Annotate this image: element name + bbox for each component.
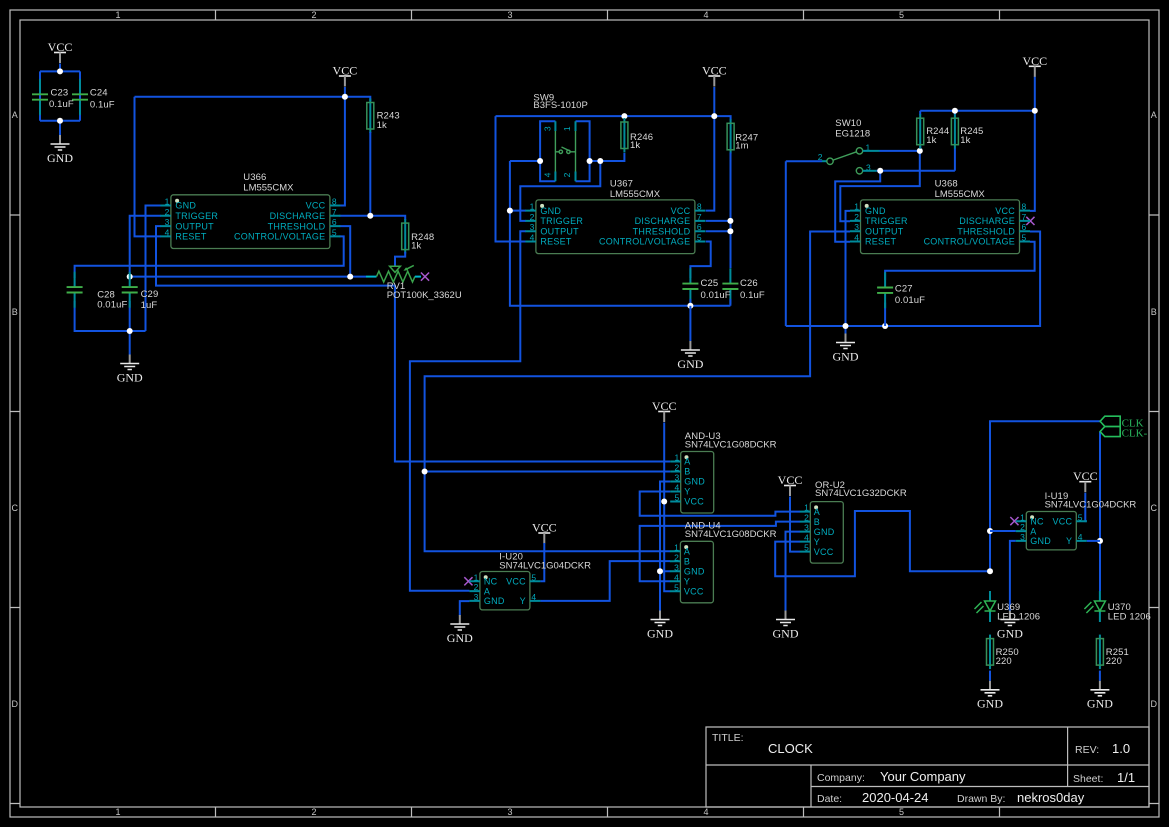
svg-text:Date:: Date: — [817, 793, 842, 805]
svg-text:0.01uF: 0.01uF — [97, 300, 127, 311]
svg-text:0.1uF: 0.1uF — [49, 99, 74, 110]
svg-text:1uF: 1uF — [141, 300, 158, 311]
svg-text:LM555CMX: LM555CMX — [610, 189, 661, 200]
svg-text:SN74LVC1G04DCKR: SN74LVC1G04DCKR — [499, 561, 591, 572]
svg-text:1: 1 — [115, 807, 120, 817]
svg-text:D: D — [12, 699, 19, 709]
svg-text:U366: U366 — [243, 172, 266, 183]
svg-text:1k: 1k — [630, 140, 640, 151]
svg-text:LM555CMX: LM555CMX — [243, 183, 294, 194]
svg-text:3: 3 — [543, 126, 553, 131]
svg-text:SN74LVC1G08DCKR: SN74LVC1G08DCKR — [685, 439, 777, 450]
svg-text:4: 4 — [703, 10, 708, 20]
svg-text:B3FS-1010P: B3FS-1010P — [533, 100, 587, 111]
svg-text:1k: 1k — [926, 135, 936, 146]
svg-text:SN74LVC1G32DCKR: SN74LVC1G32DCKR — [815, 488, 907, 499]
svg-text:3: 3 — [507, 10, 512, 20]
svg-text:4: 4 — [543, 172, 553, 177]
svg-text:Company:: Company: — [817, 772, 865, 784]
svg-text:B: B — [12, 307, 18, 317]
svg-text:SN74LVC1G04DCKR: SN74LVC1G04DCKR — [1045, 500, 1137, 511]
svg-text:0.01uF: 0.01uF — [701, 290, 731, 301]
svg-text:C29: C29 — [141, 289, 159, 300]
svg-text:U367: U367 — [610, 179, 633, 190]
svg-text:LED 1206: LED 1206 — [1108, 611, 1151, 622]
svg-text:C: C — [12, 503, 19, 513]
svg-text:1m: 1m — [735, 141, 748, 152]
svg-text:1.0: 1.0 — [1112, 741, 1130, 756]
svg-text:A: A — [12, 110, 18, 120]
svg-text:LED 1206: LED 1206 — [997, 611, 1040, 622]
svg-text:1k: 1k — [960, 135, 970, 146]
svg-text:4: 4 — [703, 807, 708, 817]
svg-text:Drawn By:: Drawn By: — [957, 793, 1005, 805]
svg-text:C25: C25 — [701, 278, 719, 289]
svg-text:1: 1 — [562, 126, 572, 131]
svg-text:2020-04-24: 2020-04-24 — [862, 790, 929, 805]
svg-text:0.1uF: 0.1uF — [740, 290, 765, 301]
svg-text:1k: 1k — [411, 241, 421, 252]
svg-text:SN74LVC1G08DCKR: SN74LVC1G08DCKR — [685, 529, 777, 540]
svg-text:EG1218: EG1218 — [835, 128, 870, 139]
svg-text:5: 5 — [899, 10, 904, 20]
svg-text:CLK-: CLK- — [1122, 427, 1148, 439]
svg-text:TITLE:: TITLE: — [712, 732, 744, 744]
svg-text:D: D — [1151, 699, 1158, 709]
svg-text:0.1uF: 0.1uF — [90, 100, 115, 111]
svg-text:LM555CMX: LM555CMX — [935, 189, 986, 200]
svg-text:1k: 1k — [377, 120, 387, 131]
svg-text:Sheet:: Sheet: — [1073, 773, 1103, 785]
svg-text:REV:: REV: — [1075, 744, 1099, 756]
svg-text:POT100K_3362U: POT100K_3362U — [387, 290, 462, 301]
svg-text:2: 2 — [562, 172, 572, 177]
svg-text:220: 220 — [1106, 656, 1122, 667]
svg-text:1: 1 — [115, 10, 120, 20]
svg-text:A: A — [1151, 110, 1157, 120]
svg-text:1/1: 1/1 — [1117, 770, 1135, 785]
svg-text:2: 2 — [818, 152, 823, 162]
svg-text:Your Company: Your Company — [880, 769, 966, 784]
svg-text:CLOCK: CLOCK — [768, 741, 813, 756]
svg-text:C26: C26 — [740, 278, 758, 289]
svg-text:2: 2 — [311, 10, 316, 20]
svg-text:C23: C23 — [51, 88, 69, 99]
svg-text:220: 220 — [996, 656, 1012, 667]
svg-text:nekros0day: nekros0day — [1017, 790, 1085, 805]
svg-text:C24: C24 — [90, 88, 108, 99]
svg-text:5: 5 — [899, 807, 904, 817]
svg-text:C27: C27 — [895, 284, 913, 295]
svg-text:2: 2 — [311, 807, 316, 817]
svg-text:B: B — [1151, 307, 1157, 317]
svg-text:3: 3 — [507, 807, 512, 817]
svg-text:0.01uF: 0.01uF — [895, 295, 925, 306]
svg-text:C: C — [1151, 503, 1158, 513]
svg-text:U368: U368 — [935, 179, 958, 190]
